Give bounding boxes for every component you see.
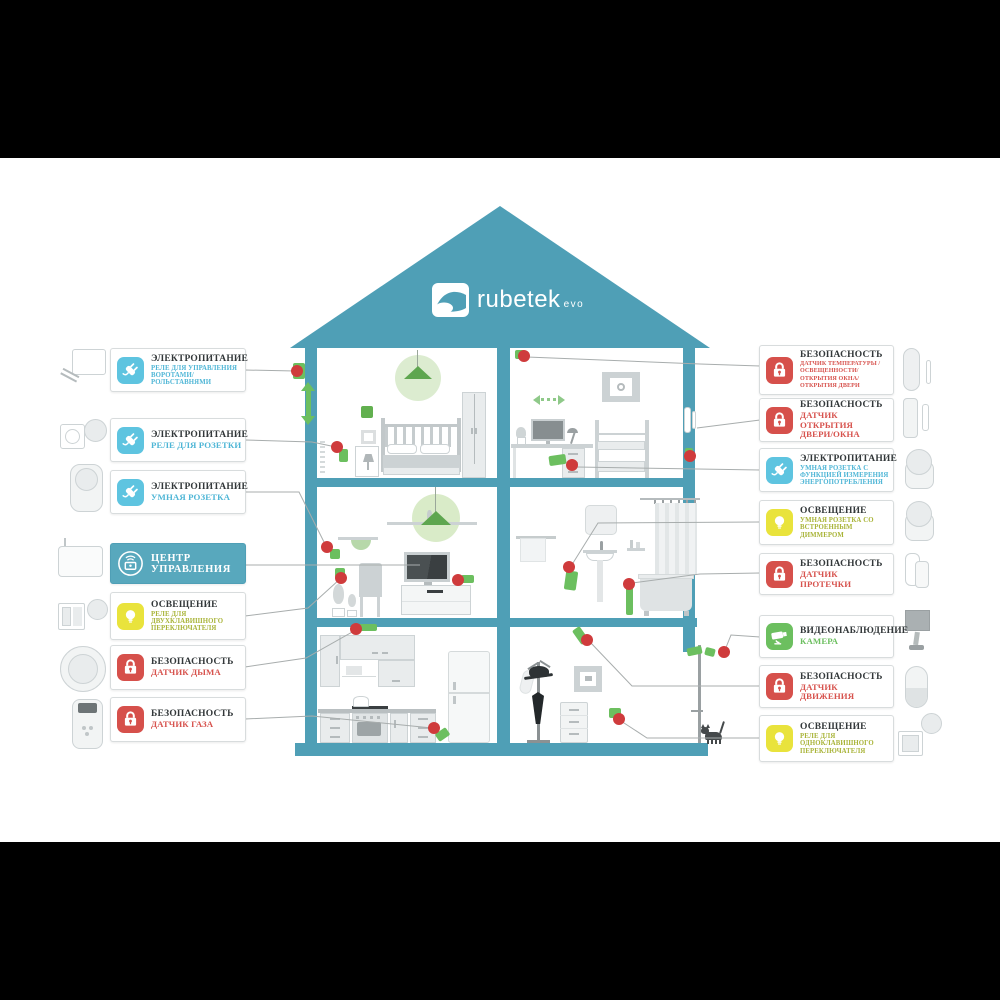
smart-device-chip — [564, 570, 579, 590]
device-smoke-sensor-inner — [68, 654, 98, 684]
bedroom-wardrobe-handles — [471, 428, 473, 434]
device-point-dot — [623, 578, 635, 590]
label-door-window-sensor: БЕЗОПАСНОСТЬДАТЧИК ОТКРЫТИЯ ДВЕРИ/ОКНА — [759, 398, 894, 442]
desk-lamp-head — [567, 428, 578, 433]
bed-pillow-2 — [420, 444, 450, 454]
plug-icon — [766, 457, 793, 484]
label-category: ВИДЕОНАБЛЮДЕНИЕ — [800, 626, 908, 636]
desk-leg — [513, 448, 516, 478]
plug-icon — [117, 479, 144, 506]
bathtub-foot-2 — [684, 611, 689, 616]
label-one-gang-switch-relay: ОСВЕЩЕНИЕРЕЛЕ ДЛЯ ОДНОКЛАВИШНОГО ПЕРЕКЛЮ… — [759, 715, 894, 762]
bedroom-wardrobe-split — [474, 394, 475, 464]
rubetek-logo-icon — [432, 283, 469, 317]
bath-mirror-cabinet — [585, 505, 617, 535]
label-dimmer-plug: ОСВЕЩЕНИЕУМНАЯ РОЗЕТКА СО ВСТРОЕННЫМ ДИМ… — [759, 500, 894, 545]
cat-legs — [707, 739, 709, 744]
desk-drawer-handles — [568, 453, 578, 455]
connector-line — [245, 579, 340, 616]
label-category: ОСВЕЩЕНИЕ — [800, 506, 887, 516]
fridge-handles — [453, 682, 456, 690]
device-point-dot — [613, 713, 625, 725]
bedroom-table-lamp-stem — [367, 462, 369, 470]
connector-line — [725, 635, 760, 650]
oven-window — [357, 722, 381, 736]
kitchen-kettle — [353, 696, 369, 707]
device-point-dot — [581, 634, 593, 646]
device-point-dot — [291, 365, 303, 377]
plant-bush-2 — [348, 594, 356, 607]
shutter-arrow-shaft — [306, 390, 311, 417]
level-dashes — [541, 398, 558, 401]
tv-cabinet-shelfline — [402, 601, 470, 602]
device-door-sensor-magnet — [922, 404, 929, 431]
brand-edition: evo — [564, 299, 585, 310]
label-category: ЦЕНТР УПРАВЛЕНИЯ — [151, 553, 239, 575]
label-device: УМНАЯ РОЗЕТКА СО ВСТРОЕННЫМ ДИММЕРОМ — [800, 517, 887, 539]
sink-pedestal — [597, 560, 603, 602]
hall-drawer-handles — [569, 709, 579, 711]
bedroom-radiator — [320, 441, 325, 473]
shutter-arrow-down-icon — [301, 416, 315, 425]
label-device: КАМЕРА — [800, 637, 908, 647]
bathtub-body — [640, 579, 692, 611]
label-device: ДАТЧИК ДВИЖЕНИЯ — [800, 683, 887, 702]
label-socket-relay: ЭЛЕКТРОПИТАНИЕРЕЛЕ ДЛЯ РОЗЕТКИ — [110, 418, 246, 462]
kitchen-upper-cabinet-top — [340, 635, 415, 660]
bathtub-foot-1 — [644, 611, 649, 616]
bedroom-picture-frame — [361, 430, 376, 444]
label-motion-sensor: БЕЗОПАСНОСТЬДАТЧИК ДВИЖЕНИЯ — [759, 665, 894, 708]
cat-ear-1 — [701, 724, 705, 728]
hall-picture-motif — [585, 676, 592, 681]
device-point-dot — [350, 623, 362, 635]
label-device: ДАТЧИК ТЕМПЕРАТУРЫ / ОСВЕЩЕННОСТИ/ ОТКРЫ… — [800, 361, 887, 390]
kidsroom-picture-motif — [617, 383, 625, 391]
device-point-dot — [335, 572, 347, 584]
desk-monitor — [531, 419, 565, 441]
device-energy-meter-plug-face — [906, 449, 932, 475]
ground-slab — [295, 743, 708, 756]
device-multi-sensor-stick — [926, 360, 931, 384]
device-point-dot — [566, 459, 578, 471]
label-energy-meter-plug: ЭЛЕКТРОПИТАНИЕУМНАЯ РОЗЕТКА С ФУНКЦИЕЙ И… — [759, 448, 894, 492]
coat-rack-base — [527, 740, 550, 743]
label-category: ЭЛЕКТРОПИТАНИЕ — [800, 454, 897, 464]
center-wall — [497, 348, 510, 743]
living-lamp-cord — [435, 487, 436, 513]
lock-icon — [766, 407, 793, 434]
device-point-dot — [563, 561, 575, 573]
label-device: ДАТЧИК ОТКРЫТИЯ ДВЕРИ/ОКНА — [800, 411, 887, 440]
bath-bottle-2 — [636, 542, 640, 548]
fridge-split — [449, 692, 489, 694]
living-chair-leg-2 — [377, 597, 380, 617]
kitchen-base-door-cabinet — [390, 713, 408, 743]
device-gas-sensor-grille — [78, 703, 97, 713]
living-chair-leg-1 — [360, 597, 363, 617]
plant-bush-1 — [333, 584, 344, 604]
device-one-gang-switch-rocker — [902, 735, 919, 752]
connector-line — [697, 420, 760, 428]
bath-shelf — [627, 548, 645, 551]
bunk-bed-post-right — [645, 420, 649, 478]
infographic-canvas: rubetek evo — [0, 0, 1000, 1000]
level-arrow-left-icon — [533, 395, 540, 405]
bathtub-rim — [638, 574, 694, 579]
plant-pot-1 — [332, 608, 345, 617]
tv-cabinet-handle — [427, 590, 443, 593]
level-arrow-right-icon — [558, 395, 565, 405]
device-point-dot — [718, 646, 730, 658]
plant-pot-2 — [347, 610, 357, 617]
device-point-dot — [452, 574, 464, 586]
device-dimmer-plug-face — [906, 501, 932, 527]
label-category: БЕЗОПАСНОСТЬ — [800, 350, 887, 360]
kitchen-base-drawers-left-handles — [330, 718, 340, 720]
floor-divider-1 — [305, 478, 695, 487]
bed-base — [383, 467, 460, 475]
brand-name: rubetek — [477, 286, 561, 314]
device-camera-head — [905, 610, 930, 631]
device-door-sensor-photo — [903, 398, 918, 438]
connector-line — [245, 370, 295, 371]
label-control-center: ЦЕНТР УПРАВЛЕНИЯ — [110, 543, 246, 584]
fridge — [448, 651, 490, 743]
kitchen-upper-cabinet-right-handle — [392, 680, 400, 682]
smart-device-chip — [704, 647, 716, 657]
wall-door-sensor-bar — [684, 407, 691, 433]
device-point-dot — [331, 441, 343, 453]
kitchen-niche-item — [346, 666, 362, 675]
wall-door-sensor-magnet — [692, 411, 696, 429]
label-device: ДАТЧИК ДЫМА — [151, 668, 234, 678]
living-chair-back — [359, 563, 382, 597]
hall-drawer-lines — [560, 715, 588, 716]
label-device: РЕЛЕ ДЛЯ ДВУХКЛАВИШНОГО ПЕРЕКЛЮЧАТЕЛЯ — [151, 611, 239, 633]
bed-pillow-1 — [387, 444, 417, 454]
connector-line — [590, 642, 760, 686]
label-gas-sensor: БЕЗОПАСНОСТЬДАТЧИК ГАЗА — [110, 697, 246, 742]
kitchen-base-drawers-right-handles — [418, 718, 428, 720]
bath-bottle-1 — [630, 540, 633, 548]
lock-icon — [117, 654, 144, 681]
device-point-dot — [684, 450, 696, 462]
cat-tail — [719, 721, 725, 734]
label-category: БЕЗОПАСНОСТЬ — [800, 400, 887, 410]
control-hub-icon — [117, 550, 144, 577]
device-camera-neck — [913, 632, 920, 646]
device-leak-sensor-body — [915, 561, 929, 588]
bunk-bed-top-bunk — [597, 441, 645, 450]
sink-faucet — [600, 541, 603, 550]
device-two-gang-relay-module — [87, 599, 108, 620]
label-gate-shutter-relay: ЭЛЕКТРОПИТАНИЕРЕЛЕ ДЛЯ УПРАВЛЕНИЯ ВОРОТА… — [110, 348, 246, 392]
label-device: УМНАЯ РОЗЕТКА С ФУНКЦИЕЙ ИЗМЕРЕНИЯ ЭНЕРГ… — [800, 465, 897, 487]
bunk-bed-rail — [597, 433, 645, 435]
device-control-hub-photo — [58, 546, 103, 577]
device-two-gang-switch-rockers — [62, 607, 71, 626]
label-two-gang-switch-relay: ОСВЕЩЕНИЕРЕЛЕ ДЛЯ ДВУХКЛАВИШНОГО ПЕРЕКЛЮ… — [110, 592, 246, 640]
label-device: РЕЛЕ ДЛЯ УПРАВЛЕНИЯ ВОРОТАМИ/РОЛЬСТАВНЯМ… — [151, 365, 248, 387]
device-gas-sensor-buttons — [82, 726, 86, 730]
label-category: ОСВЕЩЕНИЕ — [151, 600, 239, 610]
lock-icon — [117, 706, 144, 733]
lock-icon — [766, 561, 793, 588]
shower-curtain — [655, 503, 697, 575]
label-leak-sensor: БЕЗОПАСНОСТЬДАТЧИК ПРОТЕЧКИ — [759, 553, 894, 595]
device-camera-base — [909, 645, 924, 650]
kitchen-niche-shelf — [342, 676, 376, 677]
lock-icon — [766, 357, 793, 384]
label-category: ЭЛЕКТРОПИТАНИЕ — [151, 482, 248, 492]
stove-knobs — [356, 716, 382, 719]
device-point-dot — [428, 722, 440, 734]
label-smart-plug: ЭЛЕКТРОПИТАНИЕУМНАЯ РОЗЕТКА — [110, 470, 246, 514]
plug-icon — [117, 357, 144, 384]
kitchen-upper-cabinet-top-handles — [372, 652, 378, 654]
living-tv — [404, 552, 450, 582]
umbrella — [532, 692, 544, 724]
device-socket-relay-module — [84, 419, 107, 442]
label-multi-sensor: БЕЗОПАСНОСТЬДАТЧИК ТЕМПЕРАТУРЫ / ОСВЕЩЕН… — [759, 345, 894, 395]
front-door-handle — [691, 710, 703, 712]
cat-ear-2 — [706, 724, 710, 728]
label-category: ОСВЕЩЕНИЕ — [800, 722, 887, 732]
device-point-dot — [518, 350, 530, 362]
shelf-dome-light — [351, 540, 371, 550]
label-camera: ВИДЕОНАБЛЮДЕНИЕКАМЕРА — [759, 615, 894, 658]
device-socket-relay-ring — [65, 429, 80, 444]
label-smoke-sensor: БЕЗОПАСНОСТЬДАТЧИК ДЫМА — [110, 645, 246, 690]
device-gate-shutter-relay-photo — [72, 349, 106, 375]
kitchen-base-door-handle — [394, 720, 396, 728]
bulb-icon — [766, 725, 793, 752]
label-device: ДАТЧИК ГАЗА — [151, 720, 234, 730]
cat-head — [701, 727, 709, 734]
kitchen-upper-cabinet-right — [378, 660, 415, 687]
label-device: ДАТЧИК ПРОТЕЧКИ — [800, 570, 887, 589]
label-category: БЕЗОПАСНОСТЬ — [151, 657, 234, 667]
device-multi-sensor-photo — [903, 348, 920, 391]
camera-icon — [766, 623, 793, 650]
towel — [520, 538, 546, 562]
device-one-gang-relay-module — [921, 713, 942, 734]
connector-line — [621, 721, 760, 738]
device-smart-plug-face — [75, 468, 98, 491]
bedroom-wall-sensor — [361, 406, 373, 418]
plug-icon — [117, 427, 144, 454]
brand-logo: rubetek evo — [432, 283, 584, 317]
bunk-bed-bottom-bunk — [597, 461, 645, 472]
bulb-icon — [766, 509, 793, 536]
label-category: ЭЛЕКТРОПИТАНИЕ — [151, 354, 248, 364]
label-category: БЕЗОПАСНОСТЬ — [151, 709, 234, 719]
letterbox-bottom — [0, 842, 1000, 1000]
label-category: БЕЗОПАСНОСТЬ — [800, 559, 887, 569]
kitchen-upper-cabinet-tall-handle — [336, 656, 338, 664]
bed-blanket — [383, 455, 460, 467]
label-device: РЕЛЕ ДЛЯ ОДНОКЛАВИШНОГО ПЕРЕКЛЮЧАТЕЛЯ — [800, 733, 887, 755]
label-category: БЕЗОПАСНОСТЬ — [800, 672, 887, 682]
bulb-icon — [117, 603, 144, 630]
label-category: ЭЛЕКТРОПИТАНИЕ — [151, 430, 248, 440]
label-device: УМНАЯ РОЗЕТКА — [151, 493, 248, 503]
device-point-dot — [321, 541, 333, 553]
label-device: РЕЛЕ ДЛЯ РОЗЕТКИ — [151, 441, 248, 451]
lock-icon — [766, 673, 793, 700]
